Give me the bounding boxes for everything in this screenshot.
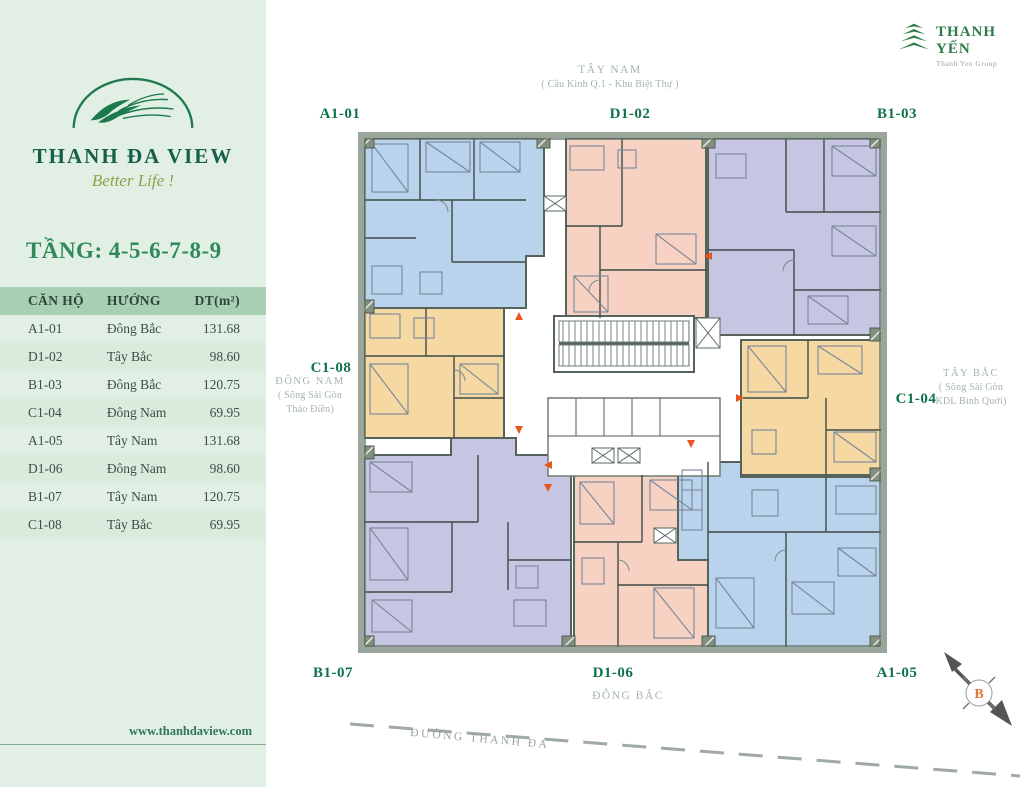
logo-title: THANH ĐA VIEW xyxy=(0,144,266,169)
page: THANH ĐA VIEW Better Life ! TẦNG: 4-5-6-… xyxy=(0,0,1024,787)
direction-cell: Đông Bắc xyxy=(106,371,194,399)
unit-cell: C1-04 xyxy=(0,399,106,427)
table-row: A1-01 Đông Bắc 131.68 xyxy=(0,315,266,343)
area-cell: 131.68 xyxy=(194,315,266,343)
area-cell: 98.60 xyxy=(194,455,266,483)
table-row: A1-05 Tây Nam 131.68 xyxy=(0,427,266,455)
unit-label-c1-08: C1-08 xyxy=(294,360,368,377)
road-dashed-line xyxy=(340,710,1024,787)
header-dt: DT(m²) xyxy=(194,287,266,315)
direction-top: TÂY NAM ( Cầu Kinh Q.1 - Khu Biệt Thự ) xyxy=(495,64,725,92)
unit-cell: D1-06 xyxy=(0,455,106,483)
table-row: B1-03 Đông Bắc 120.75 xyxy=(0,371,266,399)
table-row: B1-07 Tây Nam 120.75 xyxy=(0,483,266,511)
brand-name: THANH YẾN xyxy=(936,24,1024,58)
unit-area-b1-03 xyxy=(708,138,884,335)
logo-tagline: Better Life ! xyxy=(0,171,266,191)
direction-bottom-label: ĐÔNG BẮC xyxy=(558,690,698,702)
floor-title: TẦNG: 4-5-6-7-8-9 xyxy=(26,238,222,264)
thanh-yen-logo: THANH YẾN Thanh Yen Group xyxy=(898,18,1024,68)
thanh-da-view-logo: THANH ĐA VIEW Better Life ! xyxy=(0,62,266,191)
area-cell: 120.75 xyxy=(194,483,266,511)
direction-left-sub1: ( Sông Sài Gòn xyxy=(254,389,366,403)
stairwell xyxy=(554,316,720,372)
direction-left: ĐÔNG NAM ( Sông Sài Gòn Thảo Điền) xyxy=(254,376,366,416)
elevator-icon xyxy=(544,196,566,211)
table-row: C1-04 Đông Nam 69.95 xyxy=(0,399,266,427)
unit-label-a1-05: A1-05 xyxy=(860,665,934,682)
direction-cell: Đông Nam xyxy=(106,399,194,427)
unit-area-a1-01 xyxy=(364,138,544,308)
direction-cell: Đông Nam xyxy=(106,455,194,483)
table-header-row: CĂN HỘ HƯỚNG DT(m²) xyxy=(0,287,266,315)
unit-cell: A1-01 xyxy=(0,315,106,343)
direction-cell: Đông Bắc xyxy=(106,315,194,343)
elevator-lobby xyxy=(548,398,720,476)
direction-cell: Tây Nam xyxy=(106,483,194,511)
elevator-icon xyxy=(618,448,640,463)
elevator-icon xyxy=(592,448,614,463)
direction-cell: Tây Bắc xyxy=(106,343,194,371)
floor-plan xyxy=(356,130,892,658)
unit-cell: D1-02 xyxy=(0,343,106,371)
unit-cell: B1-03 xyxy=(0,371,106,399)
unit-table: CĂN HỘ HƯỚNG DT(m²) A1-01 Đông Bắc 131.6… xyxy=(0,287,266,539)
direction-left-sub2: Thảo Điền) xyxy=(254,403,366,417)
compass-north-icon: B xyxy=(942,650,1018,742)
brand-subtitle: Thanh Yen Group xyxy=(936,59,1024,68)
sidebar-footer: www.thanhdaview.com xyxy=(0,724,266,745)
logo-arc-leaves-icon xyxy=(58,62,208,142)
unit-label-b1-03: B1-03 xyxy=(860,106,934,123)
unit-cell: C1-08 xyxy=(0,511,106,539)
table-row: D1-06 Đông Nam 98.60 xyxy=(0,455,266,483)
leaf-stack-icon xyxy=(898,18,930,56)
direction-top-sub: ( Cầu Kinh Q.1 - Khu Biệt Thự ) xyxy=(495,78,725,92)
direction-bottom: ĐÔNG BẮC xyxy=(558,690,698,702)
header-can-ho: CĂN HỘ xyxy=(0,287,106,315)
direction-cell: Tây Bắc xyxy=(106,511,194,539)
elevator-icon xyxy=(654,528,676,543)
area-cell: 69.95 xyxy=(194,511,266,539)
direction-right: TÂY BẮC ( Sông Sài Gòn KDL Bình Quới) xyxy=(920,368,1022,408)
table-row: C1-08 Tây Bắc 69.95 xyxy=(0,511,266,539)
unit-label-d1-02: D1-02 xyxy=(593,106,667,123)
direction-left-label: ĐÔNG NAM xyxy=(254,376,366,387)
direction-right-label: TÂY BẮC xyxy=(920,368,1022,379)
table-row: D1-02 Tây Bắc 98.60 xyxy=(0,343,266,371)
area-cell: 98.60 xyxy=(194,343,266,371)
footer-divider xyxy=(0,744,266,745)
header-huong: HƯỚNG xyxy=(106,287,194,315)
unit-cell: B1-07 xyxy=(0,483,106,511)
direction-top-label: TÂY NAM xyxy=(495,64,725,76)
compass-letter: B xyxy=(974,687,983,702)
unit-cell: A1-05 xyxy=(0,427,106,455)
area-cell: 131.68 xyxy=(194,427,266,455)
sidebar: THANH ĐA VIEW Better Life ! TẦNG: 4-5-6-… xyxy=(0,0,266,787)
website-link[interactable]: www.thanhdaview.com xyxy=(0,724,266,744)
direction-right-sub1: ( Sông Sài Gòn xyxy=(920,381,1022,395)
unit-label-b1-07: B1-07 xyxy=(296,665,370,682)
direction-right-sub2: KDL Bình Quới) xyxy=(920,395,1022,409)
direction-cell: Tây Nam xyxy=(106,427,194,455)
unit-label-d1-06: D1-06 xyxy=(576,665,650,682)
unit-area-a1-05 xyxy=(678,462,884,650)
unit-label-a1-01: A1-01 xyxy=(303,106,377,123)
